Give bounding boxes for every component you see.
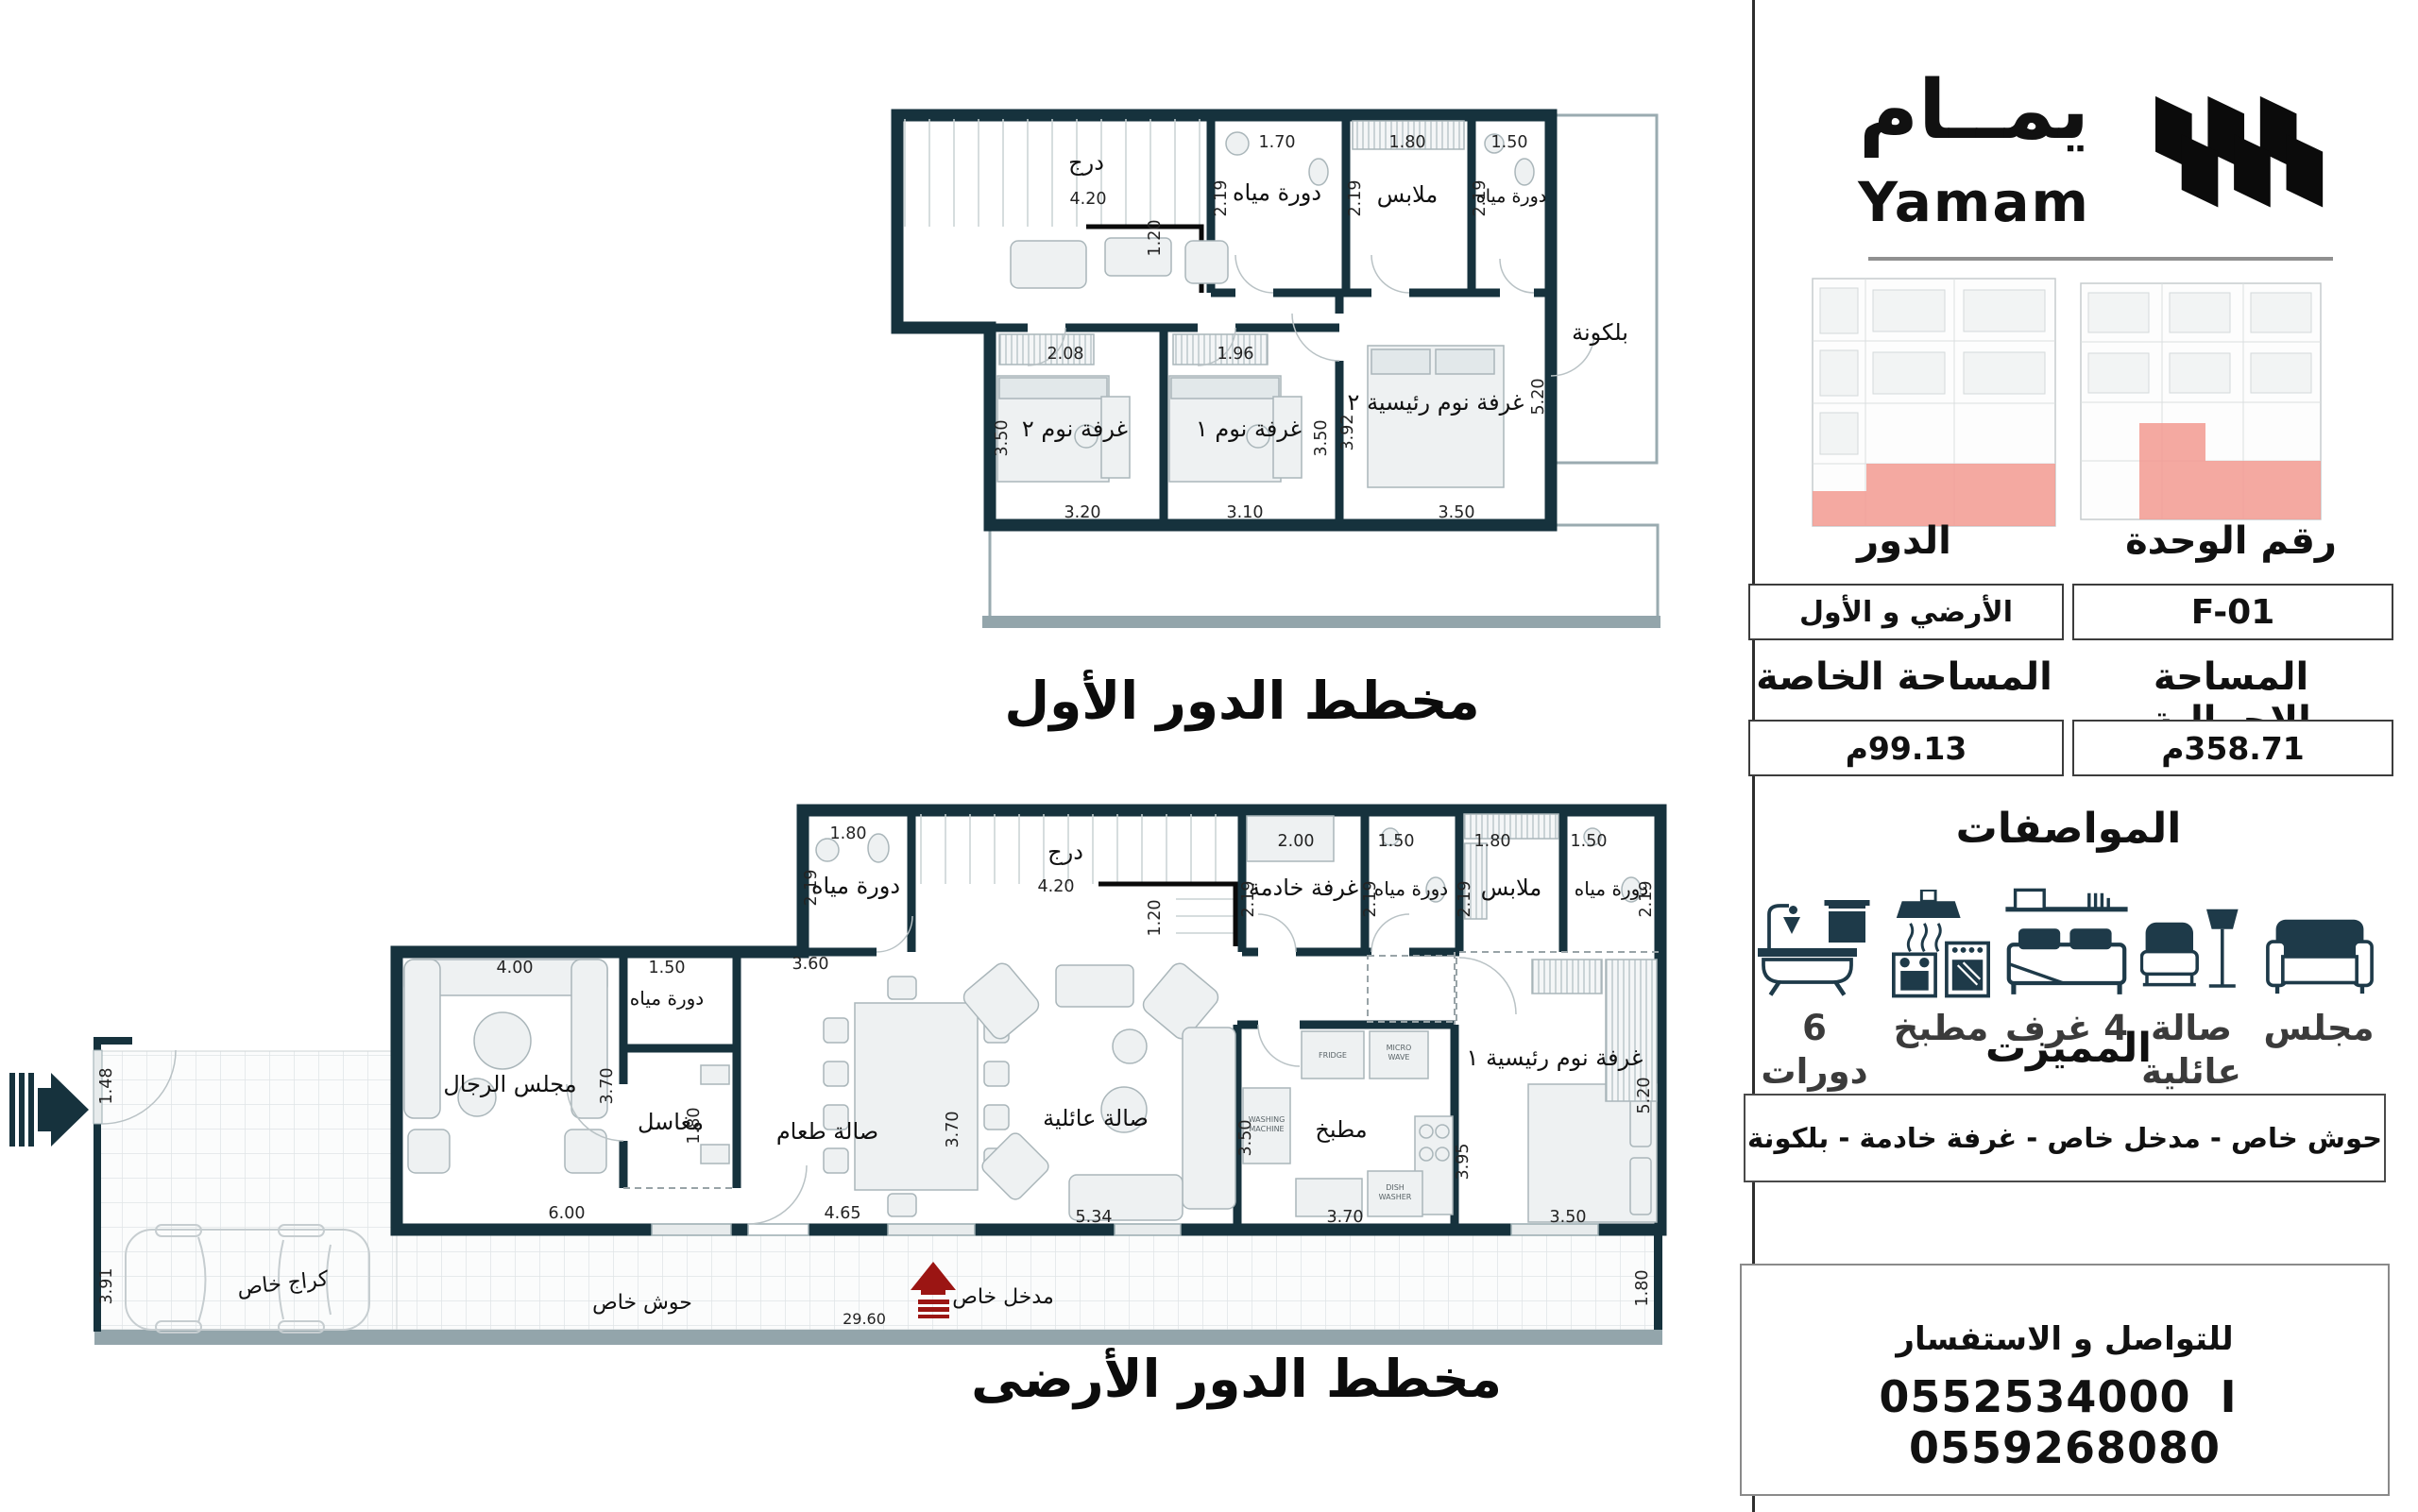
svg-text:3.70: 3.70 <box>1327 1208 1364 1227</box>
svg-text:1.50: 1.50 <box>649 959 686 977</box>
svg-text:مدخل خاص: مدخل خاص <box>952 1285 1054 1309</box>
svg-text:3.70: 3.70 <box>598 1068 617 1105</box>
svg-text:WAVE: WAVE <box>1388 1053 1410 1062</box>
svg-text:بلكونة: بلكونة <box>1572 319 1628 346</box>
svg-text:صالة عائلية: صالة عائلية <box>1043 1105 1149 1131</box>
first-floor-plan: درجدورة مياهملابسدورة مياهغرفة نوم ٢غرفة… <box>897 115 1660 628</box>
svg-text:دورة مياه: دورة مياه <box>1374 877 1448 900</box>
svg-text:دورة مياه: دورة مياه <box>811 873 900 899</box>
contact-numbers: 0552534000 I 0559268080 <box>1742 1371 2388 1473</box>
svg-text:حوش خاص: حوش خاص <box>592 1291 692 1315</box>
svg-text:غرفة نوم رئيسية ٢: غرفة نوم رئيسية ٢ <box>1348 389 1524 416</box>
ground-floor-plan: دورة مياهدرجغرفة خادمةدورة مياهملابسدورة… <box>9 810 1662 1345</box>
svg-text:3.20: 3.20 <box>1064 503 1101 522</box>
unit-number-label: رقم الوحدة <box>2072 519 2390 563</box>
private-area-value: 99.13م <box>1748 720 2064 776</box>
kitchen-icon <box>1885 890 1997 999</box>
floorplan-brochure: درجدورة مياهملابسدورة مياهغرفة نوم ٢غرفة… <box>0 0 2418 1512</box>
svg-text:5.20: 5.20 <box>1529 379 1548 416</box>
svg-text:5.20: 5.20 <box>1635 1078 1654 1114</box>
svg-text:1.48: 1.48 <box>97 1068 116 1105</box>
svg-text:3.50: 3.50 <box>1439 503 1475 522</box>
svg-text:مجلس الرجال: مجلس الرجال <box>443 1071 576 1097</box>
svg-text:3.95: 3.95 <box>1454 1144 1473 1181</box>
svg-text:غرفة نوم ١: غرفة نوم ١ <box>1196 416 1302 442</box>
svg-text:غرفة خادمة: غرفة خادمة <box>1249 875 1358 901</box>
svg-text:1.50: 1.50 <box>1378 832 1415 851</box>
svg-text:1.80: 1.80 <box>1389 133 1426 152</box>
svg-text:2.19: 2.19 <box>1346 180 1365 217</box>
svg-text:ملابس: ملابس <box>1377 181 1438 208</box>
svg-text:3.60: 3.60 <box>792 955 829 974</box>
svg-text:مطبخ: مطبخ <box>1315 1116 1367 1143</box>
svg-text:1.80: 1.80 <box>685 1108 704 1145</box>
total-area-value: 358.71م <box>2072 720 2393 776</box>
svg-text:2.19: 2.19 <box>1212 180 1231 217</box>
svg-text:29.60: 29.60 <box>843 1310 886 1328</box>
brand-mark-icon <box>2155 89 2324 212</box>
svg-text:ملابس: ملابس <box>1481 875 1541 901</box>
sofa-icon <box>2265 911 2375 999</box>
specs-title: المواصفات <box>1785 805 2352 853</box>
svg-text:1.96: 1.96 <box>1218 345 1254 364</box>
svg-text:3.70: 3.70 <box>944 1112 962 1148</box>
svg-text:MACHINE: MACHINE <box>1249 1125 1284 1133</box>
svg-text:4.00: 4.00 <box>497 959 534 977</box>
site-entrance-arrow-icon <box>9 1073 89 1147</box>
svg-text:صالة طعام: صالة طعام <box>776 1118 878 1145</box>
contact-separator: I <box>2220 1371 2237 1422</box>
unit-number-value: F-01 <box>2072 584 2393 640</box>
svg-text:2.19: 2.19 <box>1239 881 1258 918</box>
svg-text:3.10: 3.10 <box>1227 503 1264 522</box>
svg-text:1.20: 1.20 <box>1146 900 1165 937</box>
svg-text:3.91: 3.91 <box>97 1268 116 1305</box>
logo-divider-rule <box>1868 257 2333 261</box>
svg-text:درج: درج <box>1047 839 1083 865</box>
private-area-label: المساحة الخاصة <box>1748 655 2060 699</box>
svg-text:دورة مياه: دورة مياه <box>1233 179 1321 206</box>
svg-text:غرفة نوم ٢: غرفة نوم ٢ <box>1022 416 1128 442</box>
armchair-lamp-icon <box>2140 907 2246 999</box>
brand-logo-latin: Yamam <box>1809 170 2139 234</box>
svg-text:1.80: 1.80 <box>1633 1270 1652 1307</box>
features-box: حوش خاص - مدخل خاص - غرفة خادمة - بلكونة <box>1744 1094 2386 1182</box>
bed-icon <box>2002 887 2131 999</box>
svg-text:1.50: 1.50 <box>1491 133 1528 152</box>
svg-text:4.20: 4.20 <box>1038 877 1075 896</box>
svg-text:6.00: 6.00 <box>549 1204 586 1223</box>
contact-title: للتواصل و الاستفسار <box>1742 1320 2388 1358</box>
svg-text:2.00: 2.00 <box>1278 832 1315 851</box>
svg-text:MICRO: MICRO <box>1387 1044 1412 1052</box>
svg-text:دورة مياه: دورة مياه <box>630 987 704 1010</box>
svg-text:1.50: 1.50 <box>1571 832 1608 851</box>
svg-text:2.19: 2.19 <box>1361 881 1380 918</box>
svg-text:DISH: DISH <box>1386 1183 1405 1192</box>
contact-box: للتواصل و الاستفسار 0552534000 I 0559268… <box>1740 1264 2390 1496</box>
svg-text:FRIDGE: FRIDGE <box>1319 1051 1347 1060</box>
svg-text:4.20: 4.20 <box>1070 190 1107 209</box>
features-title: المميزت <box>1785 1025 2352 1072</box>
svg-text:WASHING: WASHING <box>1249 1115 1286 1124</box>
floor-value: الأرضي و الأول <box>1748 584 2064 640</box>
svg-text:WASHER: WASHER <box>1379 1193 1412 1201</box>
svg-text:2.19: 2.19 <box>1471 180 1490 217</box>
svg-text:5.34: 5.34 <box>1076 1208 1113 1227</box>
svg-text:2.08: 2.08 <box>1047 345 1084 364</box>
floor-label: الدور <box>1748 519 2060 563</box>
svg-text:2.19: 2.19 <box>802 870 821 907</box>
svg-text:3.50: 3.50 <box>993 420 1012 457</box>
svg-text:3.50: 3.50 <box>1550 1208 1587 1227</box>
svg-text:1.80: 1.80 <box>830 824 867 843</box>
bathtub-icon <box>1755 900 1874 999</box>
key-plan-left <box>1813 279 2055 526</box>
contact-number-1: 0552534000 <box>1879 1371 2190 1422</box>
svg-text:2.19: 2.19 <box>1456 881 1474 918</box>
svg-text:4.65: 4.65 <box>825 1204 861 1223</box>
floor-plans-canvas: درجدورة مياهملابسدورة مياهغرفة نوم ٢غرفة… <box>0 0 1757 1512</box>
svg-text:3.50: 3.50 <box>1312 420 1331 457</box>
svg-text:1.80: 1.80 <box>1474 832 1511 851</box>
svg-text:درج: درج <box>1068 149 1104 176</box>
svg-text:1.70: 1.70 <box>1259 133 1296 152</box>
ground-floor-title: مخطط الدور الأرضى <box>973 1349 1502 1409</box>
first-floor-title: مخطط الدور الأول <box>1001 671 1483 731</box>
svg-text:2.19: 2.19 <box>1637 881 1656 918</box>
contact-number-2: 0559268080 <box>1909 1422 2221 1473</box>
key-plan-thumbnails <box>1795 272 2342 536</box>
svg-text:1.20: 1.20 <box>1146 220 1165 257</box>
key-plan-right <box>2081 283 2321 519</box>
svg-text:3.92: 3.92 <box>1338 415 1357 451</box>
svg-text:غرفة نوم رئيسية ١: غرفة نوم رئيسية ١ <box>1467 1045 1643 1071</box>
brand-logo-arabic: يمــام <box>1809 66 2139 156</box>
